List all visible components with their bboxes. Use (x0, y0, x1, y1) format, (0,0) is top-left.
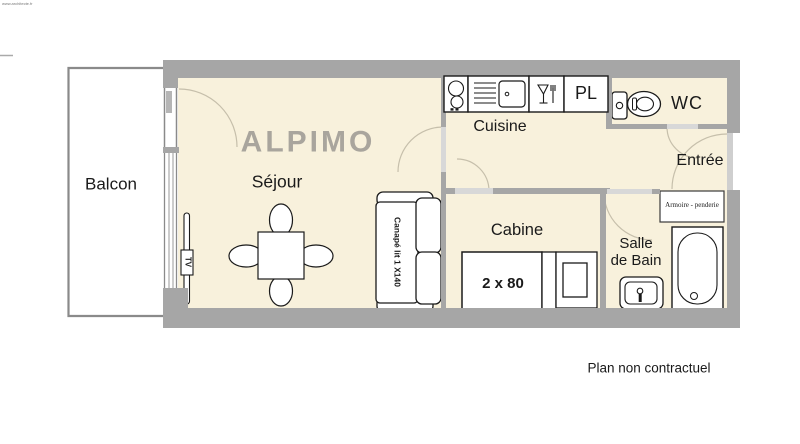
bathroom-door-opening (607, 189, 652, 194)
window-1-sash (166, 91, 172, 113)
entrance-door-leaf (727, 133, 733, 190)
cooktop-knob-2 (456, 108, 459, 110)
wall-bottom-left-corner (163, 288, 188, 328)
room-label-cabine: Cabine (491, 221, 543, 239)
room-label-cuisine: Cuisine (473, 118, 526, 136)
sofa-cushion-2 (416, 252, 441, 304)
armoire-label: Armoire - penderie (665, 202, 719, 210)
room-label-placard: PL (575, 84, 597, 104)
room-label-salle-de-bain: Salle de Bain (611, 235, 662, 269)
kitchen-door-opening (441, 127, 446, 172)
toilet-cistern (612, 92, 627, 119)
dishwasher-icon (529, 76, 564, 112)
wall-right-upper (727, 60, 740, 133)
window-2 (163, 153, 178, 288)
wall-wc-bottom (606, 124, 727, 129)
wall-right-lower (727, 190, 740, 328)
wall-cabine-bath (600, 194, 606, 308)
site-watermark: www.architecte.fr (2, 1, 32, 6)
room-label-wc: WC (671, 94, 703, 114)
wall-left-mid (163, 147, 179, 153)
wall-left-top (163, 78, 178, 88)
sofa-cushion-1 (416, 198, 441, 253)
salle-de-bain-line1: Salle (619, 235, 652, 252)
tv-label: TV (183, 257, 192, 267)
floor-plan: www.architecte.fr Balcon ALPIMO Séjour C… (0, 0, 800, 444)
room-label-entree: Entrée (676, 152, 723, 170)
wc-door-opening (667, 124, 698, 129)
plan-title: ALPIMO (241, 126, 376, 159)
nightstand-inner (563, 263, 587, 297)
room-label-sejour: Séjour (252, 172, 303, 191)
table (258, 232, 304, 279)
bed-headboard (542, 252, 556, 309)
sofa-bed (376, 192, 441, 312)
cabine-door-opening (455, 188, 493, 194)
wall-bottom (186, 308, 740, 328)
bed-size-label: 2 x 80 (482, 276, 524, 293)
salle-de-bain-line2: de Bain (611, 252, 662, 269)
room-label-balcon: Balcon (85, 176, 137, 195)
windows (163, 88, 178, 288)
sofa-label: Canapé lit 1 X140 (392, 217, 401, 287)
washbasin-faucet-stem (639, 294, 642, 302)
toilet-icon (612, 92, 661, 120)
chair-bottom (270, 276, 293, 306)
chair-top (270, 204, 293, 236)
cooktop-knob-1 (451, 108, 454, 110)
disclaimer-text: Plan non contractuel (587, 362, 710, 377)
